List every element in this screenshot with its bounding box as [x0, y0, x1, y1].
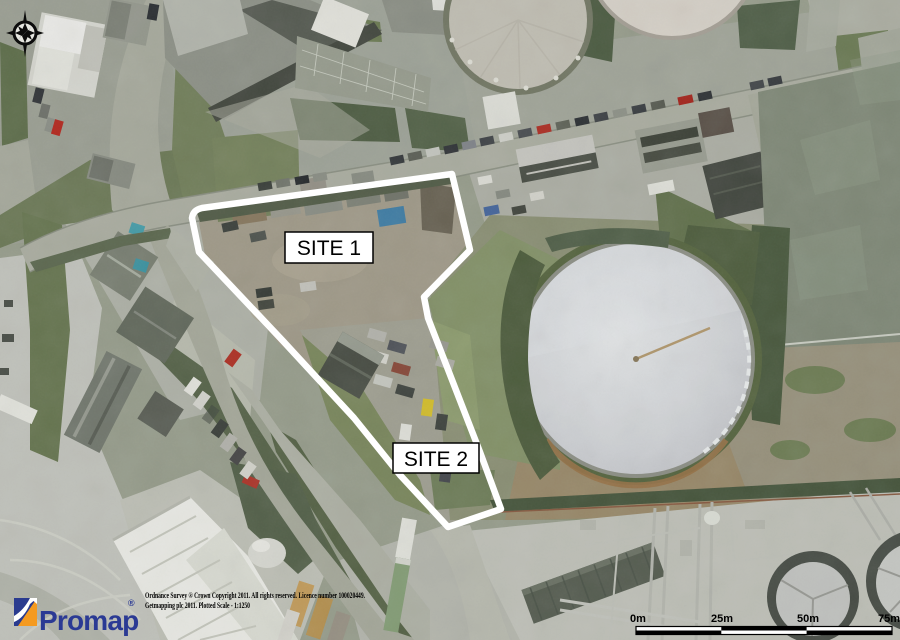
svg-text:Ordnance Survey ® Crown Copyri: Ordnance Survey ® Crown Copyright 2011. … [145, 591, 365, 600]
svg-text:25m: 25m [711, 613, 733, 625]
svg-text:Promap: Promap [39, 605, 138, 636]
svg-text:Getmapping plc 2011. Plotted S: Getmapping plc 2011. Plotted Scale - 1:1… [145, 601, 250, 610]
svg-text:75m: 75m [878, 613, 900, 625]
svg-text:SITE 1: SITE 1 [297, 237, 361, 260]
svg-text:0m: 0m [630, 613, 646, 625]
svg-text:SITE 2: SITE 2 [404, 448, 468, 471]
svg-text:®: ® [128, 598, 135, 608]
svg-text:50m: 50m [797, 613, 819, 625]
